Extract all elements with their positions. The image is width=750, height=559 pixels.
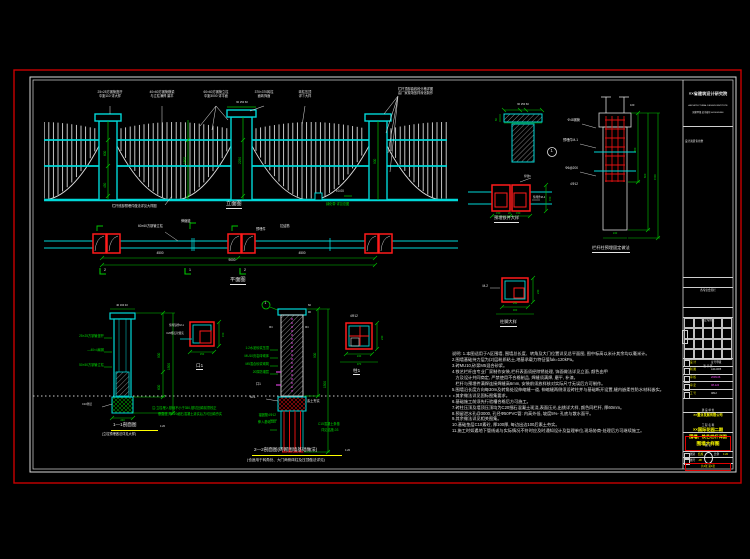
plan-label-embed: 预埋件 <box>256 228 266 232</box>
s11-label-3: 50×50方钢管立柱 <box>56 364 104 368</box>
s22-label-2: MU10页岩砖砌体 <box>226 355 269 359</box>
elev-label-4: 370×370砖柱 面砖饰面 <box>246 91 282 99</box>
elev-label-2: 40×60方钢管横梁 与立柱满焊 磨平 <box>136 91 188 99</box>
coldet-title: 栏杆柱预埋固定做法 <box>592 246 630 253</box>
s11-title: 1—1剖面图 <box>113 422 137 427</box>
tb-sheet-info: 共2张 第1张 <box>701 465 715 468</box>
col1-dim-r: 240 <box>381 336 384 340</box>
plan-dim-2: 4500 <box>290 252 314 256</box>
coldet-dim-top: 100 <box>630 104 634 107</box>
s22-anchor-2: 伸入基础350 <box>242 421 276 425</box>
basedet-label: M-2 <box>476 285 488 289</box>
elev-green-note: 绿化带 详见总图 <box>326 203 349 207</box>
s11-scale: 1:20 <box>160 425 165 428</box>
embed-dim-side: 150 <box>549 197 552 201</box>
s22-dim-t2: 90 <box>308 311 311 314</box>
fence-plan <box>44 223 458 274</box>
tb-row1: 各专业会签栏 <box>700 289 716 292</box>
plan-dim-3: 9000 <box>220 259 244 263</box>
embed-title: 预埋铁件大样 <box>494 216 519 223</box>
s22-footing-2: 详见结施-03 <box>321 429 338 433</box>
plan-label-post: 60×60方钢管立柱 <box>138 225 163 229</box>
org-sub: 设计资质专用章 <box>685 140 703 143</box>
basedet-dim-b2: 300 <box>505 309 525 312</box>
s22-soil: 素土夯实 <box>307 400 320 404</box>
cap-detail <box>500 108 557 162</box>
tb-r2-key: 制 图 <box>690 368 696 371</box>
tb-r4-val: 08-124 <box>711 384 719 387</box>
col1-label: 4Φ12 <box>350 315 358 319</box>
s22-title: 2—2剖面图(砖砌围墙基础做法) <box>254 447 317 452</box>
s22-title-underline <box>252 455 342 456</box>
tb-drawing-title-box: 围墙大样图 <box>685 436 731 451</box>
tb-drawing-title: 围墙大样图 <box>697 441 720 446</box>
plan-mark-2: 1 <box>189 268 191 272</box>
note-line: 5.围墙沿长度方向每30m及转角处设伸缩缝一道, 伸缩缝两侧须设砖柱并与基础断开… <box>452 387 688 393</box>
s22-box-ref: 口1 <box>256 383 261 387</box>
embed-plate-label: 预埋件M-1 <box>533 196 545 199</box>
box1-dim-b: 150 <box>192 353 212 356</box>
s11-title-underline <box>111 430 158 431</box>
tb-no: -08 <box>698 459 702 462</box>
cap-dim-side: 60 <box>495 118 498 121</box>
s22-mark-right: Φ4 <box>305 326 309 329</box>
box1-label-1: 预埋铁件M-1 <box>152 324 184 327</box>
tb-r5-key: 工 号 <box>690 392 696 395</box>
elev-label-6: 栏杆顶部曲线段分格详图 由厂家现场放样深化制作 <box>398 88 462 96</box>
s22-dim-1: 900 <box>314 353 318 358</box>
notes-block: 说明: 1.本图适用于A区围墙, 围墙总长度、转角及大门位置详见总平面图, 图中… <box>452 351 688 434</box>
elev-level: ±0.00 <box>336 190 344 194</box>
s22-scale: 1:20 <box>345 449 350 452</box>
plan-title: 平面图 <box>230 277 246 285</box>
box1-label-2: C20细石砼灌实 <box>146 332 184 335</box>
coldet-label-2: 预埋件M-1 <box>552 139 578 143</box>
tb-sheet-info-box: 共2张 第1张 <box>685 463 731 471</box>
s22-mark-left: Φ4 <box>269 326 273 329</box>
tb-r3-key: 审 核 <box>690 376 696 379</box>
elev-dim-post1-upper: 600 <box>104 151 108 156</box>
tb-r3-val: 2009.06 <box>711 376 720 379</box>
col1-dim-b: 240 <box>349 355 369 358</box>
embed-weld-label: 焊缝6 <box>524 175 531 178</box>
s11-subtitle: (立柱预埋做法详见大样) <box>102 433 136 437</box>
s11-pad-label: C10垫层 <box>82 403 92 406</box>
s11-label-2: —40×4扁钢 <box>62 349 104 353</box>
s22-dim-t1: 60 <box>308 304 311 307</box>
elev-cap-dim: 60 250 60 <box>227 101 257 104</box>
tb-r1-key: 设 计 <box>690 361 696 364</box>
tb-no-label: 图号 <box>690 459 695 462</box>
coldet-label-3: Φ6@200 <box>558 167 578 171</box>
elev-dim-mid: 1800 <box>184 157 188 164</box>
tb-r1-val: 证号甲级 <box>711 361 721 364</box>
coldet-label-1: Φ48钢管 <box>560 119 580 123</box>
coldet-dim-3: 1500 <box>654 174 657 180</box>
coldet-label-4: 4Φ12 <box>562 183 578 187</box>
cap-callout: 1 <box>551 149 553 154</box>
basedet-title: 柱脚大样 <box>500 320 517 327</box>
elevation-title: 立面图 <box>226 201 242 209</box>
title-block: ××省建筑设计研究院 ARCHITECTURAL DESIGN INSTITUT… <box>683 80 733 469</box>
box1-detail <box>180 320 221 354</box>
cad-sheet: 25×25方钢管竖杆 中距110 详大样 40×60方钢管横梁 与立柱满焊 磨平… <box>0 0 750 559</box>
column-rebar-detail <box>580 97 660 240</box>
s22-callout: 1 <box>265 302 267 306</box>
s22-plate-ref: M-1 <box>250 396 256 400</box>
coldet-dim-2: 600 <box>644 174 647 178</box>
box1-title: 口1 <box>196 363 203 370</box>
s22-label-4: 20厚防潮层 <box>238 371 269 375</box>
s11-dim-2: 600 <box>158 385 162 390</box>
box1-dim-r: 150 <box>222 333 225 337</box>
col1-dim-b2: 370 <box>349 363 369 366</box>
s22-subtitle: (也适用于转角处、大门两侧砖柱及压顶做法详见) <box>247 458 325 462</box>
s22-label-1: 1:2水泥砂浆压顶 <box>224 347 269 351</box>
elev-label-1: 25×25方钢管竖杆 中距110 详大样 <box>84 91 136 99</box>
s11-note-1: 注:立柱埋入基础不小于350,基坑回填前须校正 <box>152 407 216 411</box>
fence-elevation <box>0 96 501 205</box>
elev-dim-post3: 900 <box>374 159 378 164</box>
org-cert: 国家甲级 证书编号 A114005566 <box>693 112 724 114</box>
elev-label-5: 砖柱压顶 详①大样 <box>287 91 323 99</box>
section-2-2 <box>262 301 330 454</box>
elev-dim-post2: 2250 <box>239 157 243 164</box>
s22-anchor-1: 锚固筋4Φ12 <box>240 414 276 418</box>
basedet-dim-r: 240 <box>537 290 540 294</box>
tb-stamp-ellipse <box>704 452 713 464</box>
s22-dim-2: 1500 <box>324 381 328 388</box>
note-line: 11.施工时如遇地下管线或与实际情况不符时应及时通知设计及监理单位,现场协商-处… <box>452 428 688 434</box>
s11-dim-1: 900 <box>158 353 162 358</box>
tb-r2-val: A114005 <box>711 368 721 371</box>
s11-note-2: 垂直度,用C20细石混凝土灌实后方可回填夯实 <box>158 413 222 417</box>
plan-mark-1: 2 <box>104 268 106 272</box>
elev-bottom-note: 栏杆底部预埋件做法详见大样图 <box>112 205 157 209</box>
plan-label-tie: 拉结筋 <box>280 225 290 229</box>
plan-mark-3: 2 <box>244 268 246 272</box>
col1-title: 柱1 <box>353 368 360 375</box>
plan-label-joint: 伸缩缝 <box>181 220 191 224</box>
tb-r4-key: 审 定 <box>690 384 696 387</box>
cap-dim-top: 60 250 60 <box>508 103 538 106</box>
s11-label-1: 25×25方钢管竖杆 <box>58 335 104 339</box>
basedet-dim-b: 240 <box>505 302 525 305</box>
elev-dim-post1-lower: 450 <box>104 183 108 188</box>
elev-label-3: 60×60方钢管立柱 中距3000 详平面 <box>188 91 244 99</box>
s11-dim-top: 40 160 40 <box>104 304 140 307</box>
coldet-dim-bottom: 240 <box>605 232 625 235</box>
s22-footing-1: C15混凝土条基 <box>318 423 340 427</box>
cad-linework <box>0 0 750 559</box>
tb-r5-val: 0812 <box>711 392 717 395</box>
coldet-dim-1: 450 <box>634 148 637 152</box>
s11-dim-3: 1500 <box>168 363 172 370</box>
s22-label-3: M5混合砂浆砌筑 <box>226 363 269 367</box>
plan-dim-1: 4500 <box>148 252 172 256</box>
